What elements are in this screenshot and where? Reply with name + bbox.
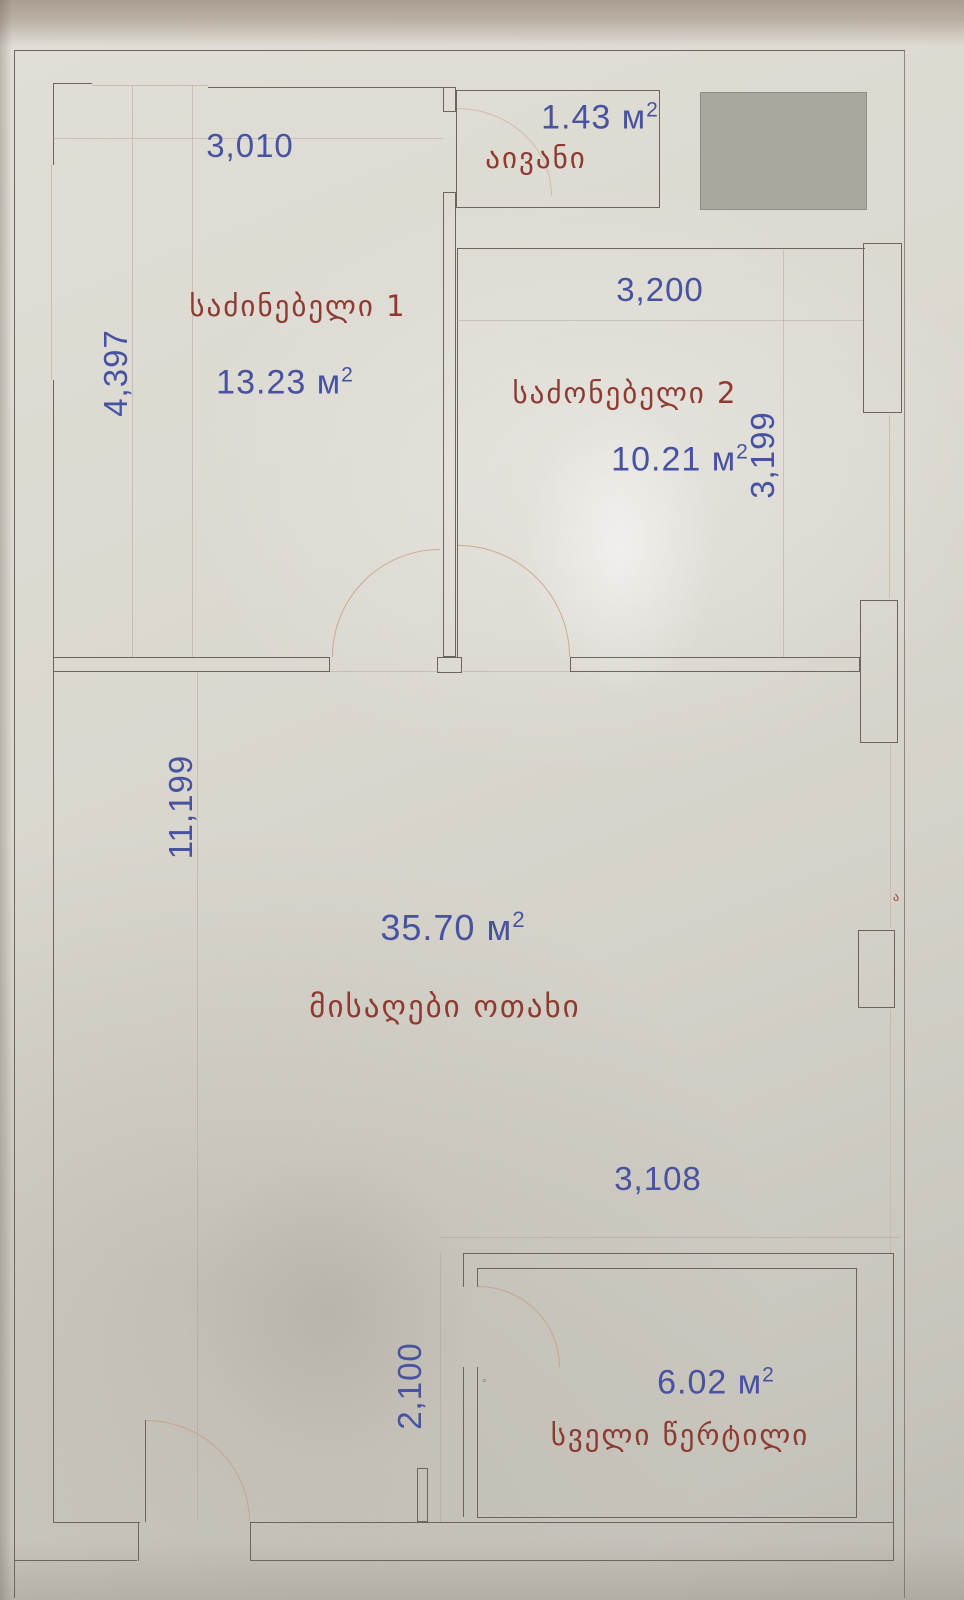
- bathroom-left-outer-lower: [463, 1367, 464, 1517]
- guide-bedroom2-width: [457, 320, 863, 321]
- area-bedroom-2: 10.21 м2: [611, 440, 749, 479]
- guide-bedroom1-height-b: [192, 85, 193, 657]
- bottom-wall-outer-right: [250, 1560, 894, 1561]
- bathroom-right-outer: [893, 1253, 894, 1560]
- guide-bathroom-width: [440, 1237, 900, 1238]
- room-label-bedroom-2: საძონებელი 2: [513, 376, 738, 410]
- bedroom2-door-arc: [458, 545, 570, 657]
- middle-wall-door-post: [437, 657, 462, 673]
- paper-left-edge-shadow: [0, 0, 12, 1600]
- bedroom1-top-window: [92, 85, 208, 86]
- living-right-window-lower: [890, 1010, 891, 1253]
- door2-threshold: [460, 671, 570, 672]
- bedroom2-top-wall: [457, 248, 865, 249]
- dim-bathroom-width: 3,108: [614, 1160, 702, 1198]
- area-bedroom-1: 13.23 м2: [216, 363, 354, 402]
- living-left-wall: [53, 672, 54, 1522]
- dim-bedroom1-width: 3,010: [206, 127, 294, 165]
- frame-left-wall: [14, 50, 15, 1598]
- dim-bedroom2-width: 3,200: [616, 271, 704, 309]
- bedroom1-left-window: [51, 165, 52, 380]
- bedroom1-door-arc: [332, 549, 440, 657]
- area-bathroom: 6.02 м2: [657, 1363, 775, 1402]
- bathroom-bottom-inner: [477, 1517, 857, 1518]
- bathroom-top-wall-outer: [463, 1253, 893, 1254]
- bathroom-left-outer-upper: [463, 1253, 464, 1287]
- paper-bottom-shadow: [0, 1540, 964, 1600]
- right-wall-pier-2: [860, 600, 898, 743]
- dim-bedroom1-height: 4,397: [97, 329, 135, 417]
- bedroom1-top-wall: [208, 87, 443, 88]
- bedroom1-left-wall-lower: [53, 380, 54, 657]
- bottom-wall-end-left: [250, 1522, 251, 1560]
- middle-wall-left-segment: [53, 657, 330, 672]
- area-balcony: 1.43 м2: [541, 98, 659, 137]
- stray-mark: ა: [893, 890, 899, 904]
- frame-right-wall: [904, 50, 905, 1598]
- door1-threshold: [330, 671, 440, 672]
- bottom-wall-inner-left: [53, 1522, 140, 1523]
- bedroom1-top-wall-stub: [53, 83, 92, 84]
- dim-bedroom2-height: 3,199: [744, 411, 782, 499]
- area-living-room: 35.70 м2: [380, 907, 525, 949]
- bottom-wall-outer-left: [14, 1560, 137, 1561]
- bathroom-right-inner: [856, 1268, 857, 1517]
- divider-wall-upper: [443, 87, 456, 112]
- bottom-wall-step-left: [138, 1522, 139, 1561]
- bathroom-door-arc: [478, 1286, 560, 1367]
- bottom-wall-spur: [417, 1468, 428, 1522]
- bathroom-top-wall-inner: [477, 1268, 856, 1269]
- living-right-window-upper: [890, 745, 891, 928]
- degree-mark: °: [482, 1378, 486, 1390]
- frame-top-wall: [14, 50, 905, 51]
- dim-living-height: 11,199: [162, 755, 200, 859]
- entrance-door-arc: [146, 1420, 250, 1522]
- guide-bedroom2-vert: [783, 250, 784, 657]
- bottom-wall-inner-right: [250, 1522, 893, 1523]
- shaft-block: [700, 92, 867, 210]
- right-wall-pier-1: [863, 243, 902, 413]
- bedroom2-right-window: [889, 415, 890, 598]
- bedroom1-left-wall-upper: [53, 83, 54, 165]
- divider-wall-lower: [443, 192, 456, 657]
- room-label-bedroom-1: საძინებელი 1: [189, 289, 406, 323]
- bathroom-left-inner-lower: [477, 1367, 478, 1517]
- room-label-living-room: მისაღები ოთახი: [309, 989, 580, 1025]
- middle-wall-right-segment: [570, 657, 860, 672]
- room-label-bathroom: სველი წერტილი: [551, 1418, 810, 1452]
- floor-plan-sheet: ° 3,010 4,397 3,200 3,199 11,199 3,108 2…: [0, 0, 964, 1600]
- right-wall-pier-3: [858, 930, 895, 1008]
- room-label-balcony: აივანი: [485, 141, 587, 175]
- bathroom-left-inner-upper: [477, 1268, 478, 1287]
- dim-bathroom-height: 2,100: [391, 1342, 429, 1430]
- paper-top-edge-shadow: [0, 0, 964, 46]
- guide-bathroom-height: [440, 1253, 441, 1522]
